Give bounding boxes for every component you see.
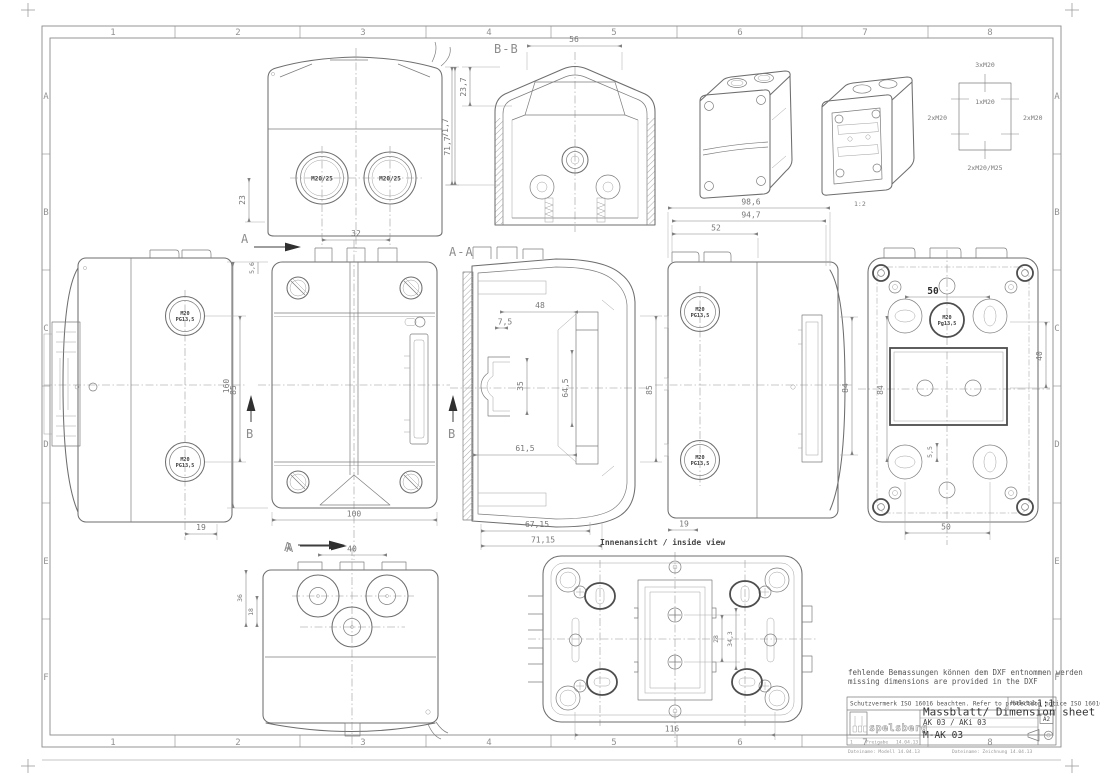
dim-343-inside: 34,3 (726, 631, 734, 647)
spelsberg-logo: spelsberg (850, 712, 928, 735)
front-latch (404, 317, 428, 444)
zone-row-d: D (43, 440, 48, 450)
zone-ticks (42, 26, 1061, 747)
section-marker-b-left: B (246, 395, 255, 441)
note-de: fehlende Bemassungen können dem DXF entn… (848, 668, 1083, 677)
zone-col-5: 5 (611, 28, 616, 38)
rear-corner-screws (873, 265, 1033, 515)
dim-85-aa: 85 (645, 385, 654, 395)
zone-col-1b: 1 (110, 738, 115, 748)
view-left-side: M20 PG13,5 M20 PG13,5 85 19 (44, 250, 246, 540)
section-bb-label: B-B (494, 42, 519, 56)
document-number: M-AK 03 (923, 730, 963, 741)
product-name: AK 03 / AKi 03 (923, 718, 986, 727)
dim-160: 160 (222, 379, 231, 394)
gland-rear-2: Pg13,5 (938, 321, 957, 327)
section-marker-a-top: A (241, 232, 301, 251)
view-front: A A B B 160 100 5,6 A-A (222, 232, 474, 560)
brand-name: spelsberg (869, 723, 928, 734)
zone-col-5b: 5 (611, 738, 616, 748)
dim-100: 100 (347, 510, 362, 519)
zone-col-8: 8 (987, 28, 992, 38)
label-a-top: A (241, 232, 249, 246)
view-front-elevation: M20/25 M20/25 32 71,7 23 (238, 42, 459, 252)
dim-56: 56 (569, 35, 579, 44)
dimension-sheet: 1 2 3 4 5 6 7 8 1 2 3 4 5 6 7 8 A B C D … (0, 0, 1100, 778)
drawing-canvas: 1 2 3 4 5 6 7 8 1 2 3 4 5 6 7 8 A B C D … (0, 0, 1100, 778)
zone-col-7: 7 (862, 28, 867, 38)
dim-19-right: 19 (679, 520, 689, 529)
dim-35: 35 (516, 381, 525, 391)
dim-19-left: 19 (196, 523, 206, 532)
zone-row-b: B (43, 208, 48, 218)
dim-986: 98,6 (741, 198, 760, 207)
dim-6715: 67,15 (525, 520, 549, 529)
view-bottom: A 40 36 18 (236, 541, 448, 748)
title-block: Schutzvermerk ISO 16016 beachten. Refer … (847, 697, 1100, 755)
inside-oval-knockouts (585, 581, 762, 695)
dim-40-rear: 40 (1035, 351, 1044, 361)
dim-75: 7,5 (498, 318, 513, 327)
label-a-bv: A (286, 541, 294, 555)
dim-23: 23 (238, 195, 247, 205)
dim-237: 23,7 (459, 77, 468, 96)
inside-view-label: Innenansicht / inside view (600, 537, 725, 547)
dim-28-inside: 28 (712, 635, 720, 643)
view-iso-closed (700, 71, 792, 198)
view-right-side: M20 PG13,5 M20 PG13,5 98,6 94,7 52 84 19 (655, 198, 858, 531)
dim-50-top: 50 (927, 286, 939, 297)
knockout-left-label: 2xM20 (927, 114, 947, 122)
zone-col-6b: 6 (737, 738, 742, 748)
dim-717: 71,7 (443, 136, 452, 155)
knockout-bottom-label: 2xM20/M25 (967, 164, 1002, 172)
sheet-title: Massblatt/ Dimension sheet (923, 706, 1095, 719)
dim-32: 32 (351, 229, 361, 238)
zone-col-2b: 2 (235, 738, 240, 748)
format-label: A2 (1043, 717, 1050, 723)
knockout-right-label: 2xM20 (1023, 114, 1043, 122)
zone-col-4b: 4 (486, 738, 491, 748)
zone-row-d2: D (1054, 440, 1059, 450)
dim-52: 52 (711, 224, 721, 233)
zone-row-c: C (43, 324, 48, 334)
dim-947: 94,7 (741, 211, 760, 220)
dim-50-bottom: 50 (941, 523, 951, 532)
zone-col-8b: 8 (987, 738, 992, 748)
dim-116-inside: 116 (665, 725, 680, 734)
dim-84-right: 84 (841, 383, 850, 393)
zone-row-e2: E (1054, 557, 1059, 567)
dim-18-bottom: 18 (247, 608, 255, 616)
dim-56-lip: 5,6 (248, 262, 256, 274)
label-b-left: B (246, 427, 254, 441)
rev-date: 14.04.13 (896, 740, 918, 746)
dim-55-rear: 5,5 (926, 446, 934, 458)
dim-40-bottom: 40 (347, 545, 357, 554)
zone-row-e: E (43, 557, 48, 567)
label-b-right: B (448, 427, 456, 441)
dim-48: 48 (535, 301, 545, 310)
knockout-top-label: 3xM20 (975, 61, 995, 69)
view-inside-bottom: 28 34,3 116 (528, 552, 816, 742)
projection-symbol-icon (1026, 730, 1054, 742)
view-iso-open: 1:2 (822, 77, 914, 208)
dim-7115: 71,15 (531, 536, 555, 545)
note-en: missing dimensions are provided in the D… (848, 677, 1038, 686)
zone-col-3: 3 (360, 28, 365, 38)
knockout-chart: 3xM20 1xM20 2xM20 2xM20 2xM20/M25 (927, 61, 1042, 172)
zone-row-b2: B (1054, 208, 1059, 218)
dim-84-rear: 84 (876, 385, 885, 395)
zone-col-6: 6 (737, 28, 742, 38)
dim-645: 64,5 (561, 378, 570, 397)
section-marker-b-right: B (448, 395, 457, 441)
view-rear: M20 Pg13,5 50 84 40 5,5 50 (858, 248, 1050, 545)
iso-scale-label: 1:2 (854, 200, 866, 208)
knockout-center-label: 1xM20 (975, 98, 995, 106)
zone-col-1: 1 (110, 28, 115, 38)
dim-717-bb: 71,7 (441, 118, 450, 137)
dim-615: 61,5 (515, 444, 534, 453)
zone-row-a2: A (1054, 92, 1060, 102)
file-drawing: Dateiname: Zeichnung 14.04.13 (952, 749, 1032, 755)
zone-col-3b: 3 (360, 738, 365, 748)
zone-col-4: 4 (486, 28, 491, 38)
file-model: Dateiname: Modell 14.04.13 (848, 749, 920, 755)
drawing-frame: 1 2 3 4 5 6 7 8 1 2 3 4 5 6 7 8 A B C D … (21, 3, 1079, 773)
drawing-notes: fehlende Bemassungen können dem DXF entn… (848, 668, 1083, 686)
label-aa: A-A (449, 245, 474, 259)
zone-col-2: 2 (235, 28, 240, 38)
zone-row-f: F (43, 673, 48, 683)
rev-no: 1 (850, 740, 853, 746)
dim-36-bottom: 36 (236, 594, 244, 602)
view-section-bb: B-B 56 23,7 71,7 (441, 35, 655, 232)
zone-row-a: A (43, 92, 49, 102)
rev-label: Freigabe (866, 740, 888, 746)
zone-row-c2: C (1054, 324, 1059, 334)
view-section-aa: 48 7,5 35 64,5 61,5 85 67,15 71,15 Innen… (450, 247, 725, 550)
